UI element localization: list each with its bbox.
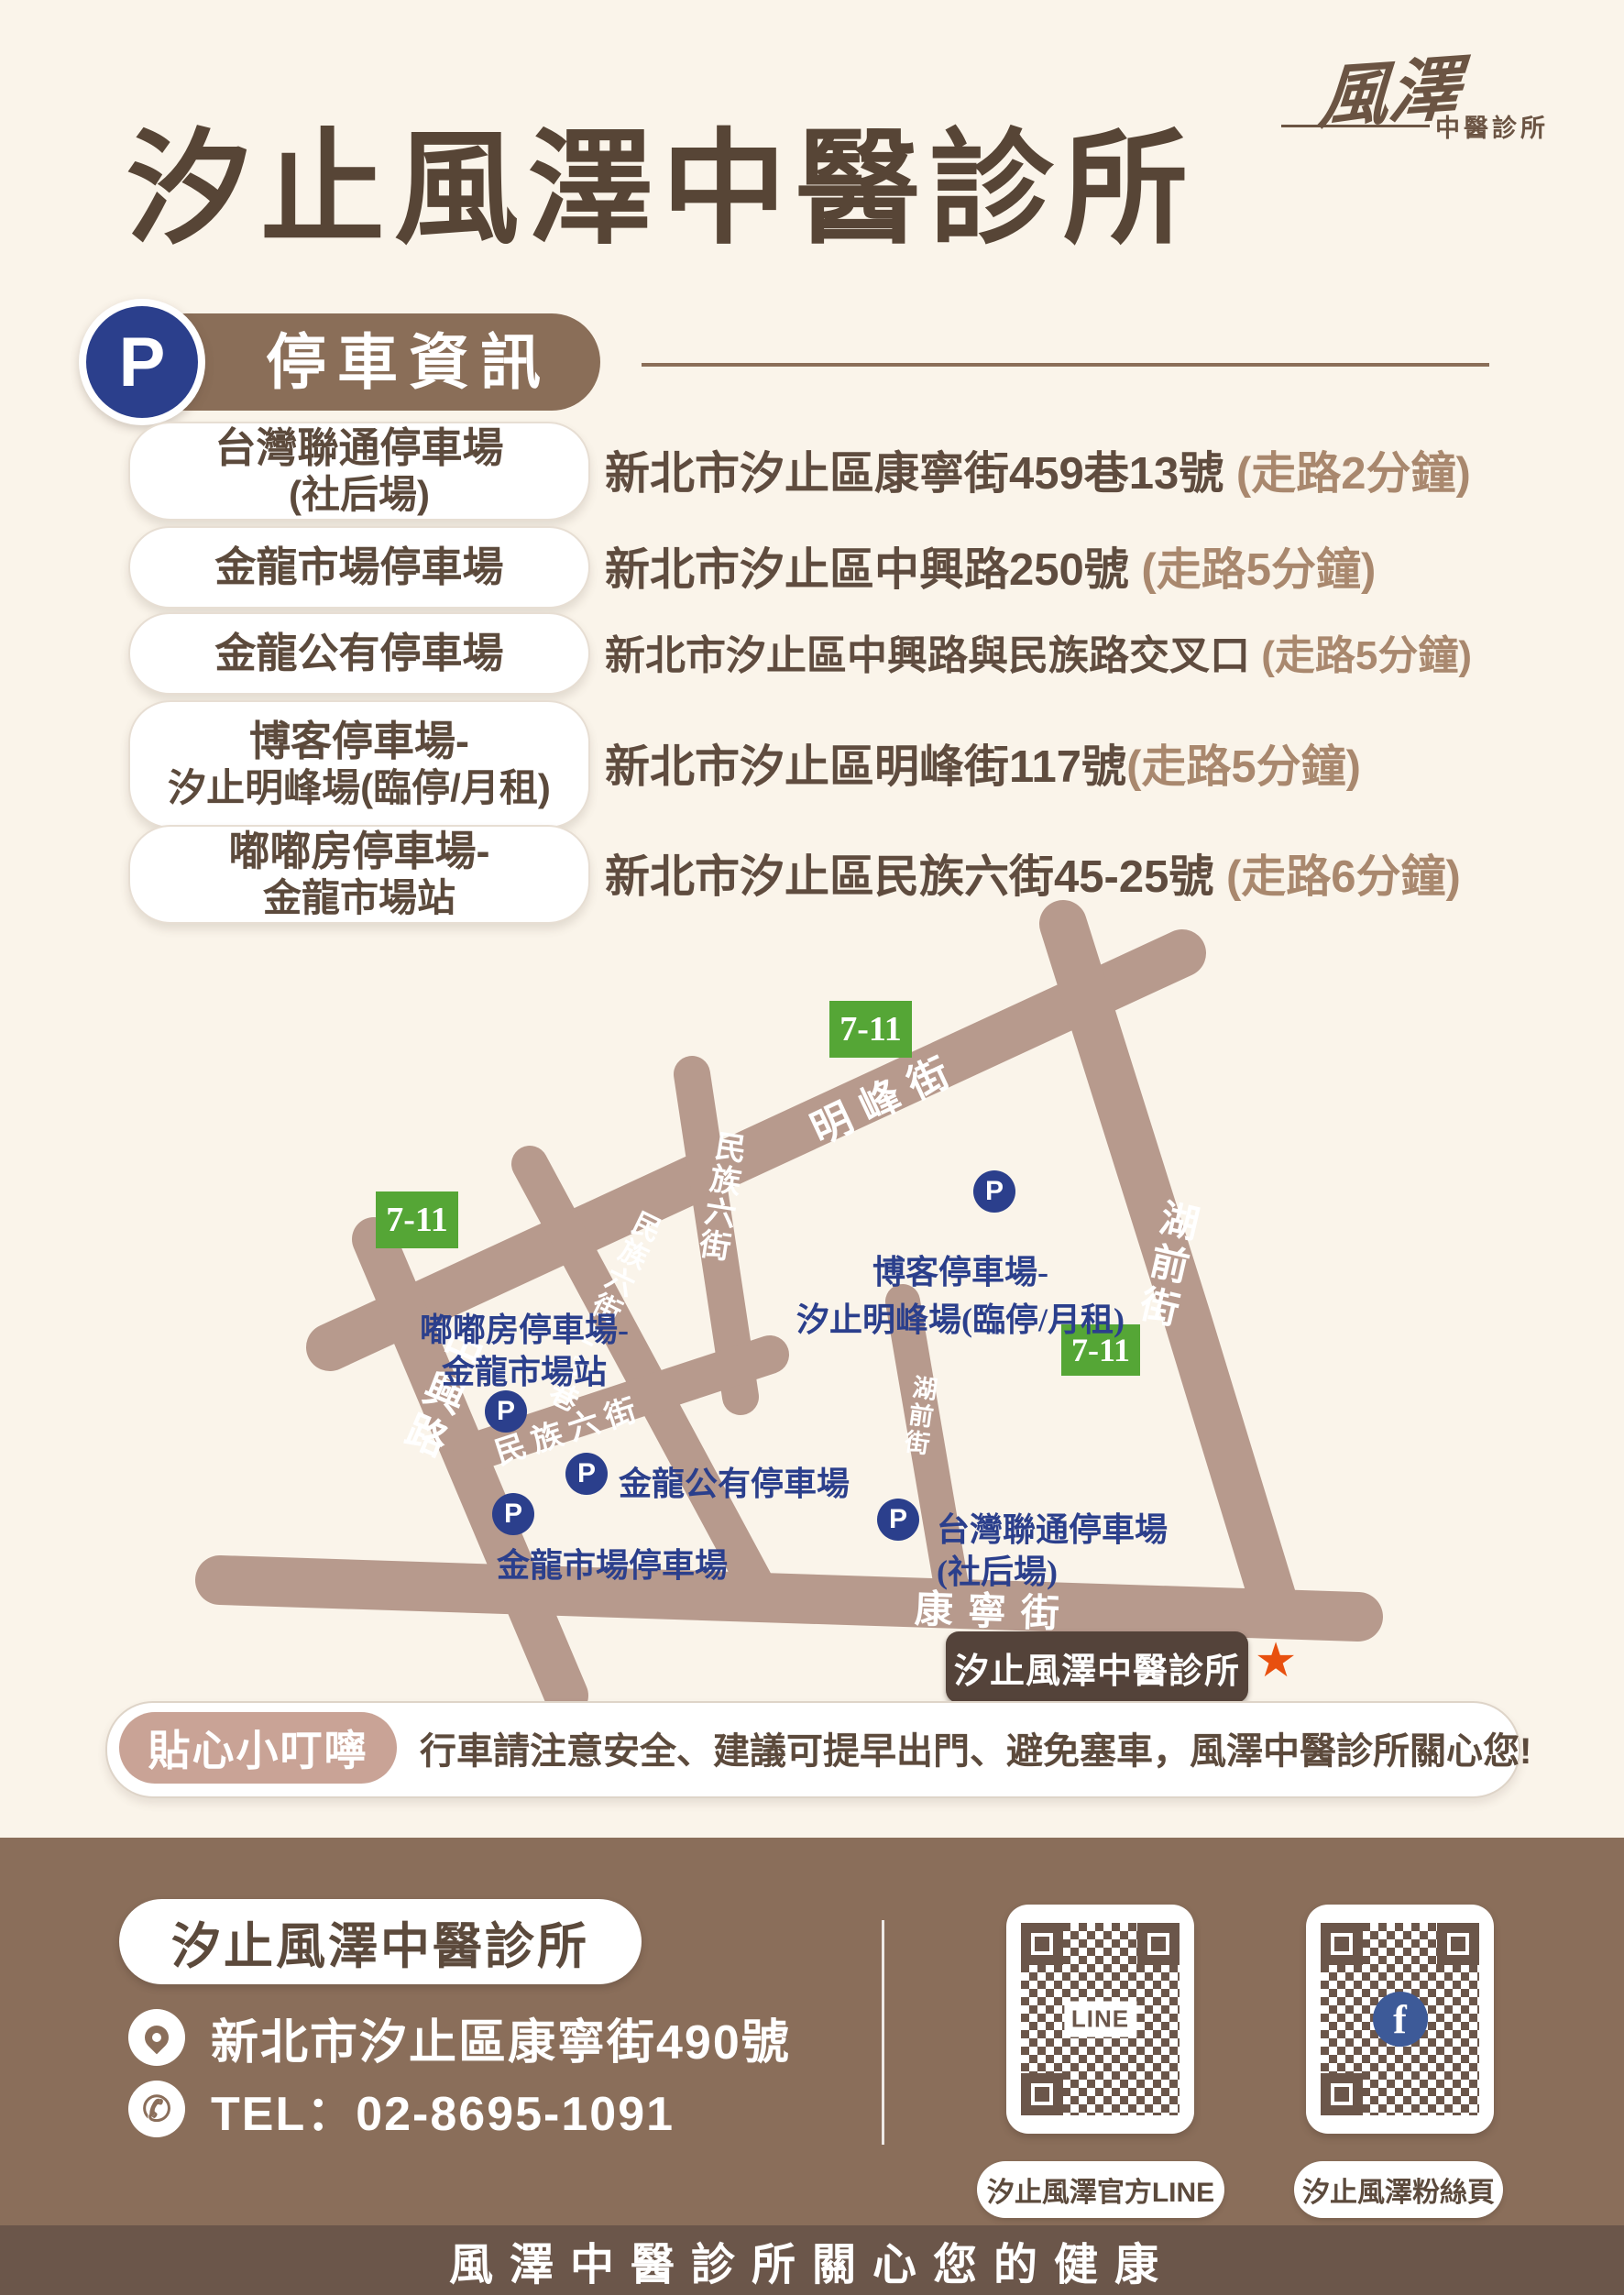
parking-address: 新北市汐止區民族六街45-25號 (走路6分鐘) [605,825,1461,920]
clinic-map-marker: 汐止風澤中醫診所 [946,1631,1248,1703]
line-qr-code: LINE [1006,1905,1194,2134]
parking-name: 博客停車場- [249,718,469,765]
star-icon: ★ [1255,1633,1298,1688]
walk-time: (走路5分鐘) [1129,533,1377,598]
page-title: 汐止風澤中醫診所 [126,88,1197,269]
parking-name-pill: 金龍公有停車場 [128,612,590,695]
qr-finder-icon [1437,1923,1479,1965]
parking-name-pill: 博客停車場- 汐止明峰場(臨停/月租) [128,700,590,829]
parking-name-line2: 汐止明峰場(臨停/月租) [168,765,551,811]
map-parking-label-boke: 博客停車場- [872,1246,1048,1293]
address-text: 新北市汐止區民族六街45-25號 [605,840,1213,906]
facebook-qr-code: f [1306,1905,1494,2134]
section-divider-line [642,363,1489,367]
map-parking-label-dudu: 嘟嘟房停車場- [420,1303,629,1351]
qr-finder-icon [1137,1923,1180,1965]
parking-section-heading: 停車資訊 [266,313,552,411]
parking-address: 新北市汐止區中興路250號 (走路5分鐘) [605,526,1376,605]
street-kangning-road [220,1580,1358,1617]
parking-name-line2: 金龍市場站 [263,875,455,921]
qr-finder-icon [1321,2073,1363,2115]
parking-address: 新北市汐止區明峰街117號(走路5分鐘) [605,700,1361,825]
walk-time: (走路6分鐘) [1213,840,1461,906]
map-parking-label-shichang: 金龍市場停車場 [497,1539,728,1587]
map-p-icon-shichang: P [492,1493,534,1535]
walk-time: (走路2分鐘) [1223,437,1471,502]
address-text: 新北市汐止區中興路與民族路交叉口 [605,622,1250,681]
line-logo: LINE [1064,2002,1136,2037]
walk-time: (走路5分鐘) [1250,622,1472,681]
walk-time: (走路5分鐘) [1126,730,1361,796]
map-parking-label-boke2: 汐止明峰場(臨停/月租) [796,1293,1125,1341]
map-p-icon-gongyou: P [565,1453,608,1495]
parking-name: 嘟嘟房停車場- [229,828,490,875]
qr-finder-icon [1321,1923,1363,1965]
map-parking-label-taiwan: 台灣聯通停車場 [937,1503,1168,1551]
address-text: 新北市汐止區明峰街117號 [605,730,1126,796]
parking-name-pill: 嘟嘟房停車場- 金龍市場站 [128,825,590,924]
parking-name: 台灣聯通停車場 [214,424,503,472]
footer-clinic-name-pill: 汐止風澤中醫診所 [119,1899,642,1984]
facebook-icon: f [1373,1992,1428,2047]
footer-divider [882,1920,884,2145]
map-p-icon-boke: P [973,1170,1015,1213]
footer-tel: TEL：02-8695-1091 [211,2081,675,2137]
parking-address: 新北市汐止區中興路與民族路交叉口 (走路5分鐘) [605,612,1472,691]
map-parking-label-dudu2: 金龍市場站 [442,1345,607,1393]
footer-address: 新北市汐止區康寧街490號 [211,2009,791,2066]
facebook-qr-label: 汐止風澤粉絲頁 [1294,2161,1503,2218]
line-qr-label: 汐止風澤官方LINE [977,2161,1224,2218]
street-mingfeng-road [330,953,1182,1347]
qr-finder-icon [1021,1923,1063,1965]
reminder-message: 行車請注意安全、建議可提早出門、避免塞車，風澤中醫診所關心您! [420,1712,1531,1784]
parking-name-pill: 金龍市場停車場 [128,526,590,609]
seven-eleven-marker: 7-11 [376,1191,458,1248]
parking-name: 金龍公有停車場 [214,630,503,677]
footer-slogan: 風澤中醫診所關心您的健康 [0,2225,1624,2295]
phone-icon: ✆ [128,2081,185,2137]
map-p-icon-taiwan: P [877,1499,919,1541]
reminder-badge: 貼心小叮嚀 [119,1712,397,1784]
parking-name-pill: 台灣聯通停車場 (社后場) [128,422,590,521]
street-label-minzu6-v: 民族六街 [687,1127,752,1265]
qr-finder-icon [1021,2073,1063,2115]
map-p-icon-dudu: P [485,1390,527,1433]
parking-name: 金龍市場停車場 [214,544,503,591]
address-text: 新北市汐止區康寧街459巷13號 [605,437,1223,502]
street-label-huqian: 湖前街 [1124,1194,1208,1335]
clinic-logo: 風澤 中醫診所 [1281,37,1575,151]
street-label-huqian-small: 湖前街 [895,1373,942,1460]
address-text: 新北市汐止區中興路250號 [605,533,1129,598]
map-parking-label-gongyou: 金龍公有停車場 [619,1457,850,1505]
location-pin-icon [128,2009,185,2066]
logo-underline [1281,125,1430,127]
parking-section-pill: 停車資訊 [137,313,600,411]
parking-address: 新北市汐止區康寧街459巷13號 (走路2分鐘) [605,422,1471,517]
parking-name-line2: (社后場) [289,472,430,518]
logo-subtitle: 中醫診所 [1435,108,1549,144]
map-parking-label-taiwan2: (社后場) [937,1545,1058,1593]
seven-eleven-marker: 7-11 [829,1001,912,1058]
parking-p-icon: P [79,299,205,425]
